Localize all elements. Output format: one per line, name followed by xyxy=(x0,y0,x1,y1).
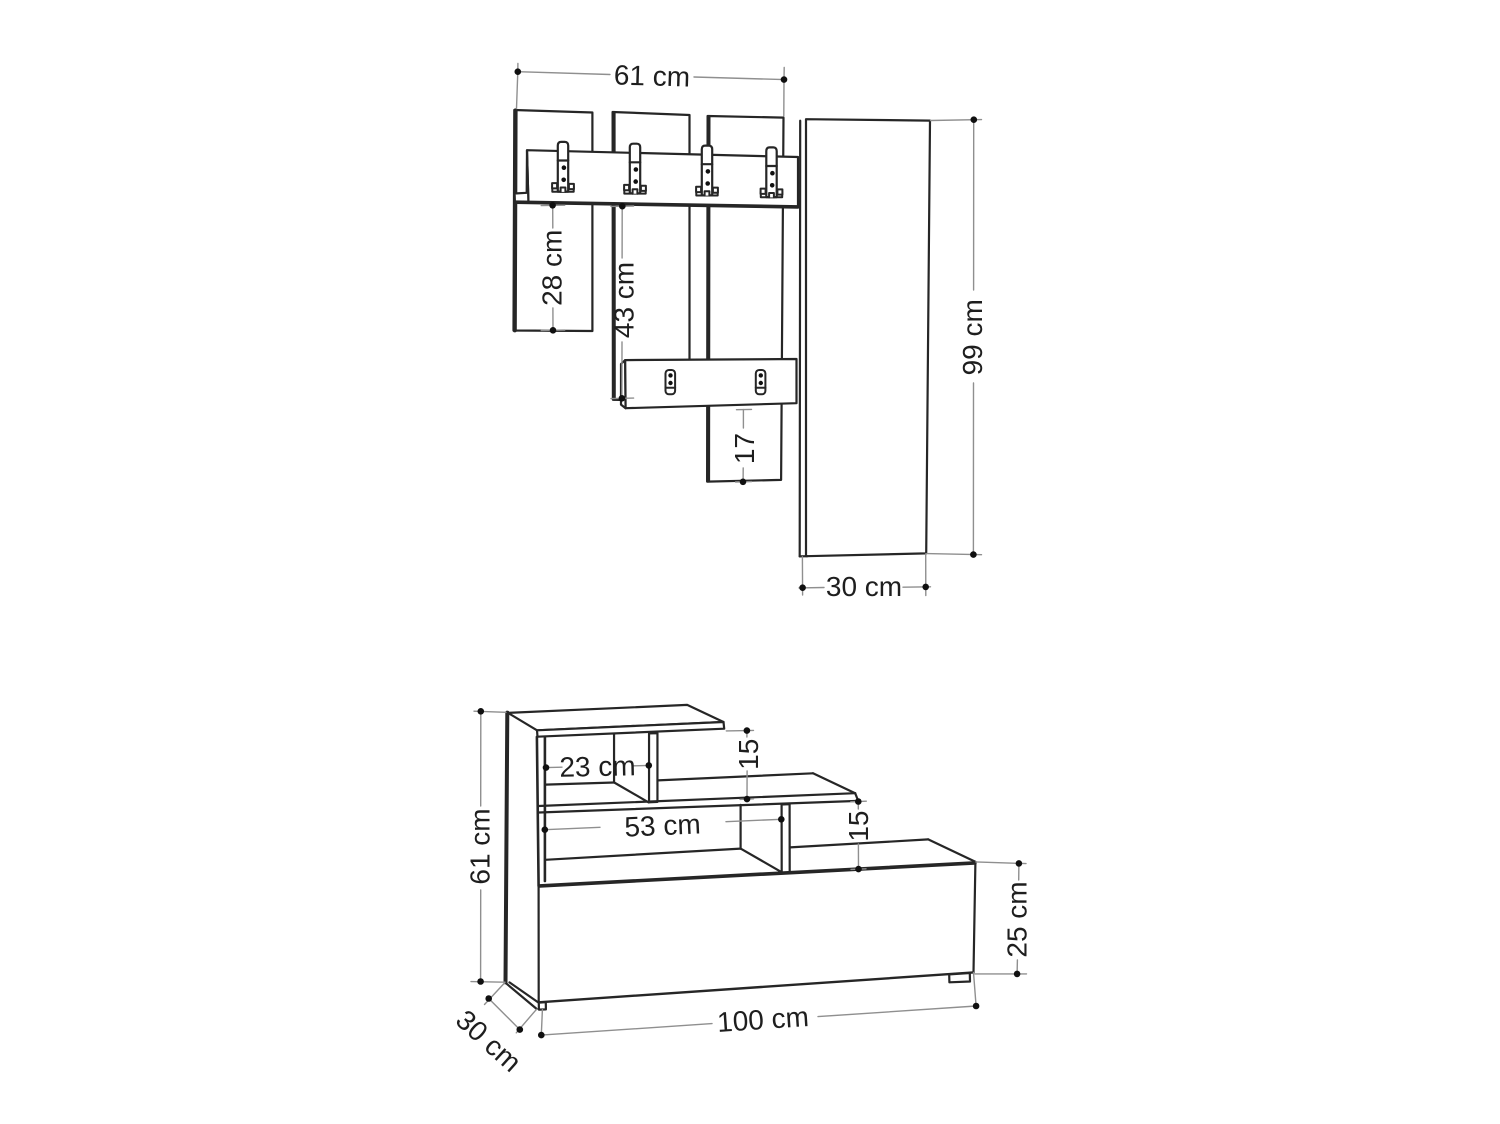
svg-text:100 cm: 100 cm xyxy=(716,1001,810,1038)
svg-text:53 cm: 53 cm xyxy=(624,808,702,842)
svg-text:30 cm: 30 cm xyxy=(826,571,902,602)
svg-text:30 cm: 30 cm xyxy=(450,1004,527,1078)
svg-text:99 cm: 99 cm xyxy=(957,299,988,375)
svg-text:43 cm: 43 cm xyxy=(609,262,640,338)
svg-text:17: 17 xyxy=(729,433,760,464)
svg-text:61 cm: 61 cm xyxy=(613,59,690,92)
svg-text:15: 15 xyxy=(843,811,874,842)
svg-text:28 cm: 28 cm xyxy=(537,230,568,306)
svg-text:61 cm: 61 cm xyxy=(465,808,496,884)
svg-text:23 cm: 23 cm xyxy=(559,750,636,783)
svg-text:25 cm: 25 cm xyxy=(1002,881,1033,957)
svg-text:15: 15 xyxy=(733,739,764,770)
